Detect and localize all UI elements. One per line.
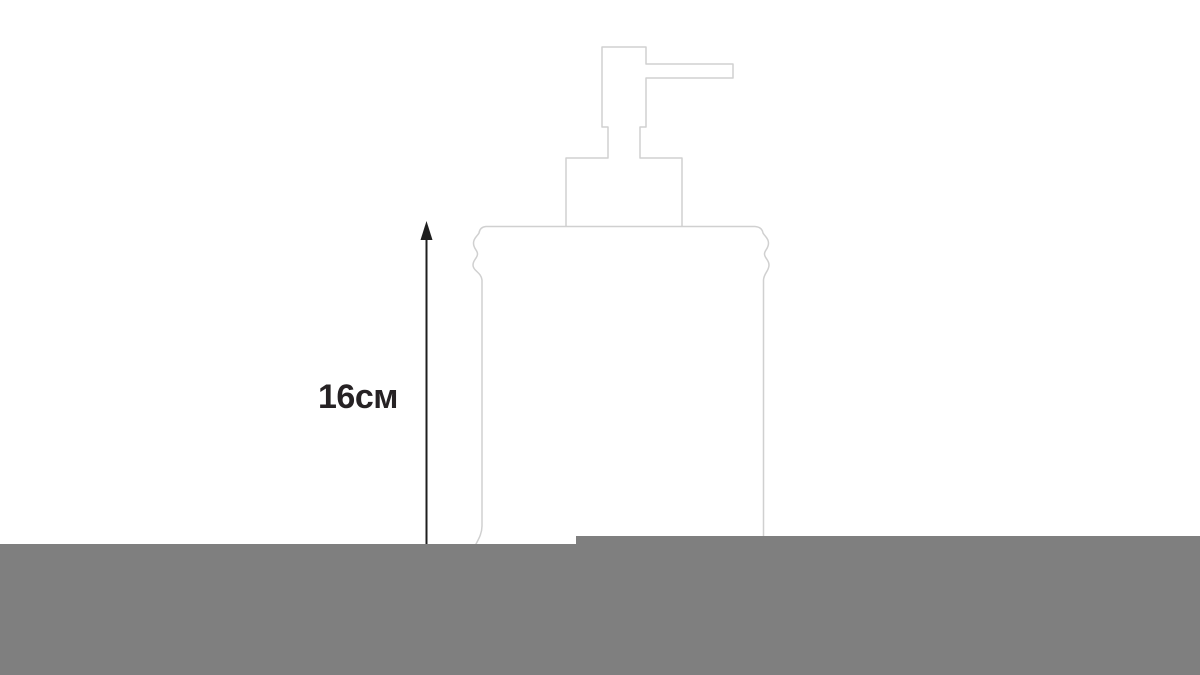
bottle-body-outline [473,227,769,546]
gray-band-right [576,536,1200,675]
dimension-label: 16см [318,378,404,417]
gray-band-left [0,544,576,675]
product-dimension-diagram: 16см [0,0,1200,675]
pump-outline [566,47,733,226]
soap-dispenser-drawing [0,0,1200,675]
dimension-arrowhead-icon [421,221,433,240]
